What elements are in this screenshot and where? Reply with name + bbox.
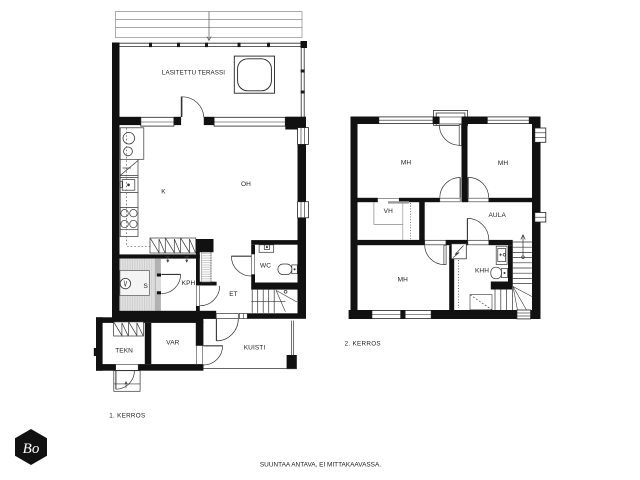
svg-text:OH: OH <box>241 181 251 188</box>
svg-text:MH: MH <box>498 160 509 167</box>
svg-text:LASITETTU TERASSI: LASITETTU TERASSI <box>162 70 225 77</box>
svg-text:SUUNTAA ANTAVA, EI MITTAKAAVAS: SUUNTAA ANTAVA, EI MITTAKAAVASSA. <box>260 461 381 468</box>
svg-text:AULA: AULA <box>489 212 507 219</box>
svg-text:1. KERROS: 1. KERROS <box>109 413 145 420</box>
svg-text:VAR: VAR <box>166 340 179 347</box>
svg-text:Bo: Bo <box>23 441 40 457</box>
svg-text:WC: WC <box>260 263 271 270</box>
svg-text:KUISTI: KUISTI <box>244 345 266 352</box>
svg-text:S: S <box>143 283 148 290</box>
svg-text:ET: ET <box>229 291 238 298</box>
svg-text:KHH: KHH <box>475 268 489 275</box>
svg-text:KPH: KPH <box>182 280 196 287</box>
svg-text:MH: MH <box>398 277 409 284</box>
svg-text:TEKN: TEKN <box>115 347 133 354</box>
svg-text:2. KERROS: 2. KERROS <box>345 341 381 348</box>
svg-text:K: K <box>161 189 166 196</box>
svg-text:VH: VH <box>384 208 393 215</box>
svg-text:MH: MH <box>401 160 412 167</box>
